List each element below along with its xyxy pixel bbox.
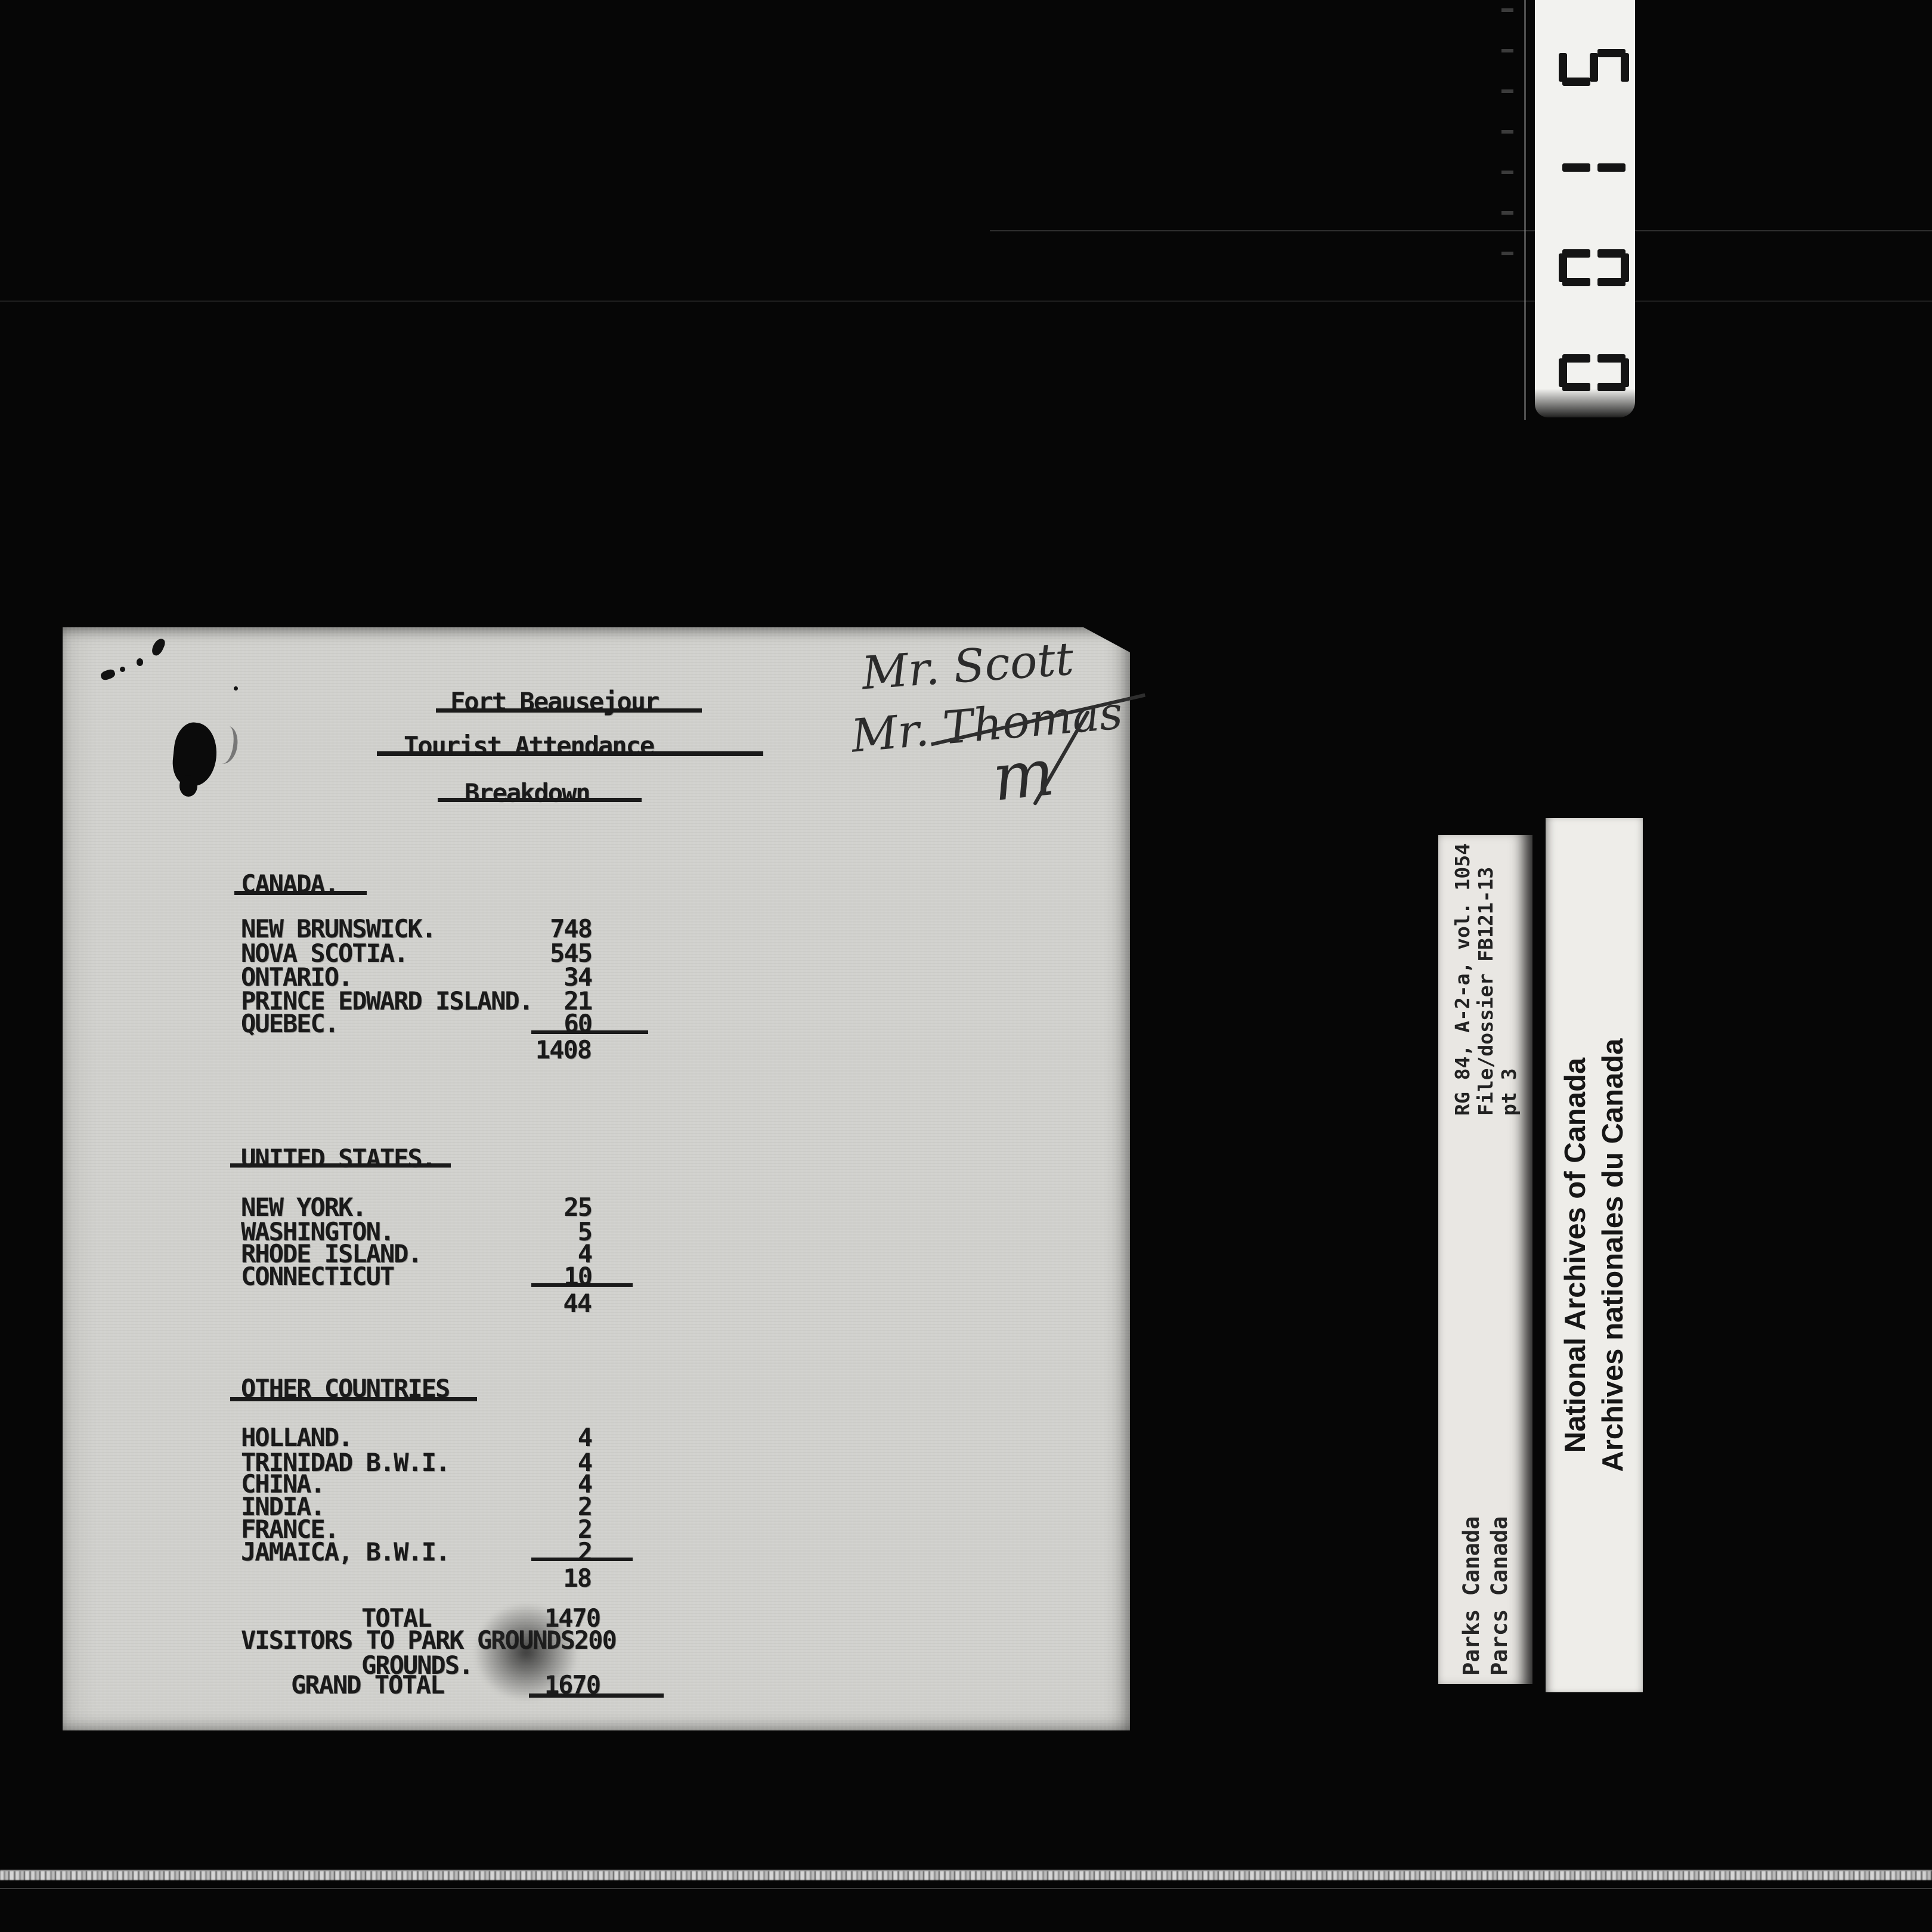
paper-speck [137,658,143,666]
row-label: GRAND TOTAL [241,1670,444,1699]
scan-scratch-line [0,301,1932,302]
paper-corner-notch [1083,627,1130,652]
title-underline-1 [436,708,702,713]
paper-speck [120,667,125,672]
title-underline-3 [438,798,642,802]
sprocket-mark [1501,8,1513,12]
heading-underline-other-countries [230,1397,477,1401]
table-row: JAMAICA, B.W.I. 2 [241,1537,592,1566]
frame-counter-digit-3 [1559,249,1629,286]
subtotal-line-other-countries [531,1558,633,1561]
ink-blot-tail [179,775,197,797]
archival-reference-text: RG 84, A-2-a, vol. 1054 File/dossier FB1… [1451,843,1521,1116]
national-archives-line-fr: Archives nationales du Canada [1594,1038,1632,1472]
sprocket-mark [1501,89,1513,93]
frame-counter-digit-2 [1559,135,1629,172]
ink-smudge-stain [474,1603,578,1701]
archival-reference-line-1: RG 84, A-2-a, vol. 1054 [1451,843,1474,1116]
archival-reference-line-3: pt 3 [1497,843,1521,1116]
sprocket-mark [1501,171,1513,174]
national-archives-text: National Archives of Canada Archives nat… [1557,1038,1632,1472]
sprocket-mark [1501,252,1513,255]
section-heading-united-states: UNITED STATES. [241,1144,435,1173]
film-edge-hairline-bottom [0,1888,1932,1889]
paper-speck [234,686,238,691]
sprocket-mark [1501,211,1513,215]
doc-title-line-3: Breakdown [465,778,590,807]
subtotal-value-canada: 1408 [525,1035,591,1064]
sprocket-mark [1501,49,1513,52]
scan-scratch-line [990,230,1932,231]
archival-reference-line-2: File/dossier FB121-13 [1474,843,1497,1116]
heading-underline-canada [234,891,367,895]
frame-counter-digit-4 [1559,354,1629,391]
ink-blot-scratch [216,725,240,766]
national-archives-line-en: National Archives of Canada [1557,1038,1594,1472]
handwritten-name-1: Mr. Scott [860,632,1075,700]
subtotal-value-other-countries: 18 [525,1563,591,1593]
row-label: CONNECTICUT [241,1262,394,1291]
paper-speck [100,668,116,681]
parks-canada-text: Parks Canada Parcs Canada [1457,1516,1513,1676]
row-label: QUEBEC. [241,1009,338,1038]
paper-speck [150,637,166,657]
row-label: JAMAICA, B.W.I. [241,1537,449,1566]
parks-canada-line-en: Parks Canada [1457,1516,1485,1676]
microfilm-scan: { "colors": { "background": "#060606", "… [0,0,1932,1932]
subtotal-line-united-states [531,1283,633,1287]
film-edge-band [0,1870,1932,1880]
ink-blot [171,721,220,788]
heading-underline-united-states [230,1163,451,1168]
subtotal-value-united-states: 44 [525,1289,591,1318]
archival-label-strip: Parks Canada Parcs Canada RG 84, A-2-a, … [1438,835,1532,1684]
national-archives-label-strip: National Archives of Canada Archives nat… [1546,818,1643,1692]
subtotal-line-canada [531,1030,648,1034]
title-underline-2 [377,751,763,756]
row-value: 2 [578,1537,592,1566]
frame-counter-digit-1 [1559,49,1629,86]
parks-canada-line-fr: Parcs Canada [1485,1516,1513,1676]
film-edge-hairline [1524,0,1526,420]
document-paper: Fort Beausejour Tourist Attendance Break… [63,627,1130,1730]
signature-initial: m [989,735,1058,816]
sprocket-mark [1501,130,1513,134]
